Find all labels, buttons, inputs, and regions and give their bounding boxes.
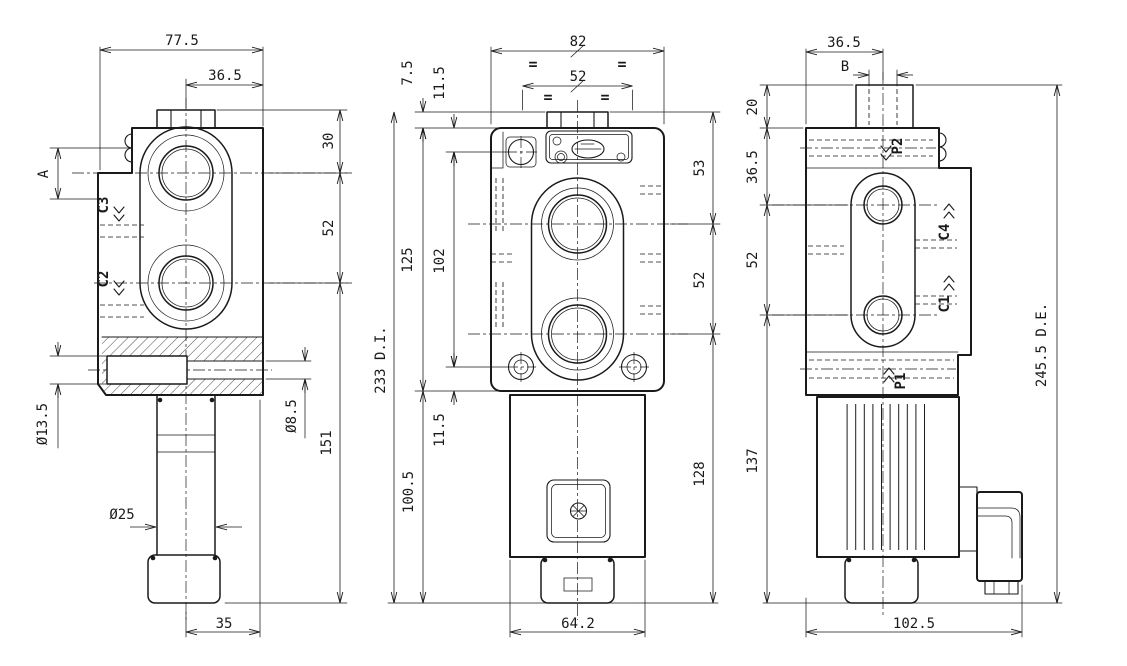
connector-terminal: [985, 581, 1018, 594]
dim-front-bolt-spacing: 102: [432, 248, 448, 273]
dim-front-hole-spacing: 52: [570, 69, 587, 85]
nameplate-screw: [555, 151, 567, 163]
technical-drawing: C3 C2 77.5 36.5 A 30 52 151: [0, 0, 1127, 666]
flow-arrow-up-icon: [944, 276, 954, 290]
port-label-p1: P1: [893, 373, 909, 390]
dim-front-port-to-bottom: 128: [692, 461, 708, 486]
connector-flange: [959, 487, 977, 551]
dim-right-total-height: 245.5 D.E.: [1034, 303, 1050, 387]
dim-left-bore-dia: Ø13.5: [35, 403, 51, 445]
port-label-p2: P2: [890, 138, 906, 155]
dim-front-body-width: 82: [570, 34, 587, 50]
symmetry-mark: =: [543, 88, 552, 106]
side-boss-bumps: [939, 133, 946, 161]
dim-front-body-height: 125: [400, 247, 416, 272]
dim-front-hex-height: 7.5: [400, 60, 416, 85]
drawing-sheet: C3 C2 77.5 36.5 A 30 52 151: [0, 0, 1127, 666]
port-label-c2: C2: [96, 271, 112, 288]
view-left-side: C3 C2 77.5 36.5 A 30 52 151: [35, 33, 352, 637]
dim-front-top-to-bolt: 11.5: [432, 66, 448, 100]
port-label-c1: C1: [937, 296, 953, 313]
dim-left-thread-depth: A: [36, 169, 52, 178]
dim-left-channel-dia: Ø8.5: [284, 399, 300, 433]
din-connector: [977, 492, 1022, 581]
dim-left-port-spacing: 52: [321, 220, 337, 237]
symmetry-mark: =: [528, 55, 537, 73]
dim-right-body-width-top: 36.5: [827, 35, 861, 51]
dim-front-bolt-to-bottom: 11.5: [432, 413, 448, 447]
o-ring: [158, 398, 163, 403]
dim-right-fitting-height: 20: [745, 99, 761, 116]
dim-left-knob-width: 35: [216, 616, 233, 632]
flow-arrow-down-icon: [114, 207, 124, 221]
dim-right-top-to-port: 36.5: [745, 150, 761, 184]
flow-arrow-up-icon: [944, 204, 954, 218]
dim-right-port-spacing: 52: [745, 252, 761, 269]
symmetry-mark: =: [617, 55, 626, 73]
dim-left-top-to-port: 30: [321, 133, 337, 150]
spool-bore: [107, 356, 187, 384]
dim-right-overall-width: 102.5: [893, 616, 935, 632]
dim-front-total-height: 233 D.I.: [373, 326, 389, 393]
dim-front-body-to-bottom: 100.5: [401, 471, 417, 513]
dim-left-port-to-bottom: 151: [319, 430, 335, 455]
port-label-c3: C3: [96, 197, 112, 214]
port-label-c4: C4: [937, 224, 953, 241]
dim-front-port-spacing: 52: [692, 272, 708, 289]
dim-front-solenoid-width: 64.2: [561, 616, 595, 632]
dim-left-port-offset: 36.5: [208, 68, 242, 84]
o-ring: [210, 398, 215, 403]
view-right-side: P2 C4 C1 P1 36.5 B 20 36.5 52: [745, 35, 1062, 637]
nameplate-screw: [553, 137, 561, 145]
dim-left-stem-dia: Ø25: [109, 507, 134, 523]
dim-right-port-to-bottom: 137: [745, 448, 761, 473]
dim-left-overall-width: 77.5: [165, 33, 199, 49]
knurled-knob: [845, 557, 918, 603]
coil-ribs: [845, 404, 930, 550]
dim-right-thread-size: B: [841, 59, 849, 75]
view-front: 82 52 = = = = 7.5 11.5 125 102: [373, 34, 720, 637]
dimensions-left-view: 77.5 36.5 A 30 52 151 Ø13.5: [35, 33, 347, 637]
symmetry-mark: =: [600, 88, 609, 106]
dim-front-top-to-port: 53: [692, 160, 708, 177]
threaded-port-fitting: [856, 85, 913, 128]
knurled-knob: [148, 555, 220, 603]
